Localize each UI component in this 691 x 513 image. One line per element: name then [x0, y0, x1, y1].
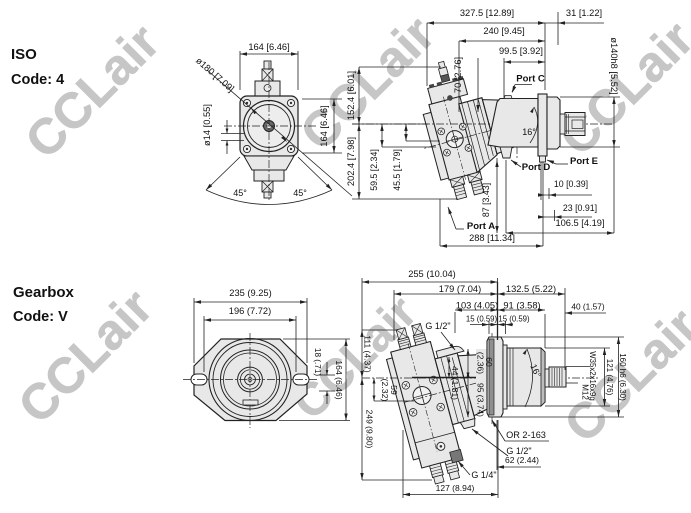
svg-text:Port E: Port E — [570, 156, 598, 167]
svg-text:288 [11.34]: 288 [11.34] — [469, 233, 515, 243]
svg-text:G 1/4": G 1/4" — [471, 470, 496, 480]
svg-text:121 (4.76): 121 (4.76) — [605, 359, 614, 396]
svg-text:99.5 [3.92]: 99.5 [3.92] — [499, 46, 543, 56]
svg-text:45°: 45° — [293, 188, 307, 198]
svg-text:45°: 45° — [233, 188, 247, 198]
svg-text:91 (3.58): 91 (3.58) — [503, 301, 540, 311]
svg-text:179 (7.04): 179 (7.04) — [439, 284, 481, 294]
svg-text:10 [0.39]: 10 [0.39] — [554, 179, 588, 189]
svg-text:(2.36): (2.36) — [476, 352, 486, 374]
svg-text:23 [0.91]: 23 [0.91] — [563, 203, 597, 213]
svg-text:164 (6.46): 164 (6.46) — [334, 360, 344, 399]
svg-text:31 [1.22]: 31 [1.22] — [566, 8, 602, 18]
svg-text:160 h6 (6.30): 160 h6 (6.30) — [618, 353, 627, 401]
svg-text:45.5 [1.79]: 45.5 [1.79] — [392, 149, 402, 191]
svg-text:Port D: Port D — [522, 162, 551, 173]
svg-text:Code: 4: Code: 4 — [11, 72, 64, 88]
svg-text:240 [9.45]: 240 [9.45] — [483, 26, 524, 36]
svg-text:70 [2.76]: 70 [2.76] — [453, 57, 463, 93]
svg-text:15 (0.59): 15 (0.59) — [466, 315, 498, 324]
svg-text:ISO: ISO — [11, 46, 37, 63]
svg-text:95 (3.74): 95 (3.74) — [476, 383, 486, 417]
svg-text:15 (0.59): 15 (0.59) — [498, 315, 530, 324]
svg-text:59.5 [2.34]: 59.5 [2.34] — [369, 149, 379, 191]
svg-text:(2.32): (2.32) — [380, 379, 390, 402]
svg-text:Gearbox: Gearbox — [13, 284, 75, 301]
svg-text:16°: 16° — [522, 127, 536, 137]
svg-text:OR 2-163: OR 2-163 — [506, 430, 546, 440]
svg-text:Port A: Port A — [467, 221, 495, 232]
svg-text:127 (8.94): 127 (8.94) — [436, 483, 475, 493]
svg-text:ø140h8 [5.52]: ø140h8 [5.52] — [609, 37, 619, 94]
svg-text:Port C: Port C — [516, 74, 545, 85]
svg-text:18 (.71): 18 (.71) — [313, 348, 322, 376]
svg-text:40 (1.57): 40 (1.57) — [571, 302, 604, 312]
svg-text:Code: V: Code: V — [13, 309, 68, 325]
svg-text:164 [6.46]: 164 [6.46] — [319, 105, 329, 146]
svg-text:235 (9.25): 235 (9.25) — [229, 288, 271, 298]
svg-text:111 (4.37): 111 (4.37) — [363, 335, 373, 373]
svg-text:152.4 [6.01]: 152.4 [6.01] — [346, 71, 356, 120]
svg-text:327.5 [12.89]: 327.5 [12.89] — [460, 8, 514, 18]
svg-text:202.4 [7.98]: 202.4 [7.98] — [346, 137, 356, 186]
svg-text:M12: M12 — [581, 384, 590, 400]
svg-text:62 (2.44): 62 (2.44) — [505, 455, 539, 465]
svg-text:106.5 [4.19]: 106.5 [4.19] — [555, 218, 604, 228]
svg-text:44 (1.81): 44 (1.81) — [450, 366, 460, 400]
svg-text:164 [6.46]: 164 [6.46] — [248, 42, 289, 52]
svg-text:255 (10.04): 255 (10.04) — [408, 269, 456, 279]
svg-text:87 [3.43]: 87 [3.43] — [481, 183, 491, 217]
svg-text:ø14 [0.55]: ø14 [0.55] — [202, 104, 212, 146]
svg-text:G 1/2": G 1/2" — [425, 321, 450, 331]
svg-text:249 (9.80): 249 (9.80) — [365, 410, 375, 449]
svg-text:103 (4.05): 103 (4.05) — [456, 301, 498, 311]
svg-text:132.5 (5.22): 132.5 (5.22) — [506, 284, 556, 294]
svg-text:196 (7.72): 196 (7.72) — [229, 306, 271, 316]
